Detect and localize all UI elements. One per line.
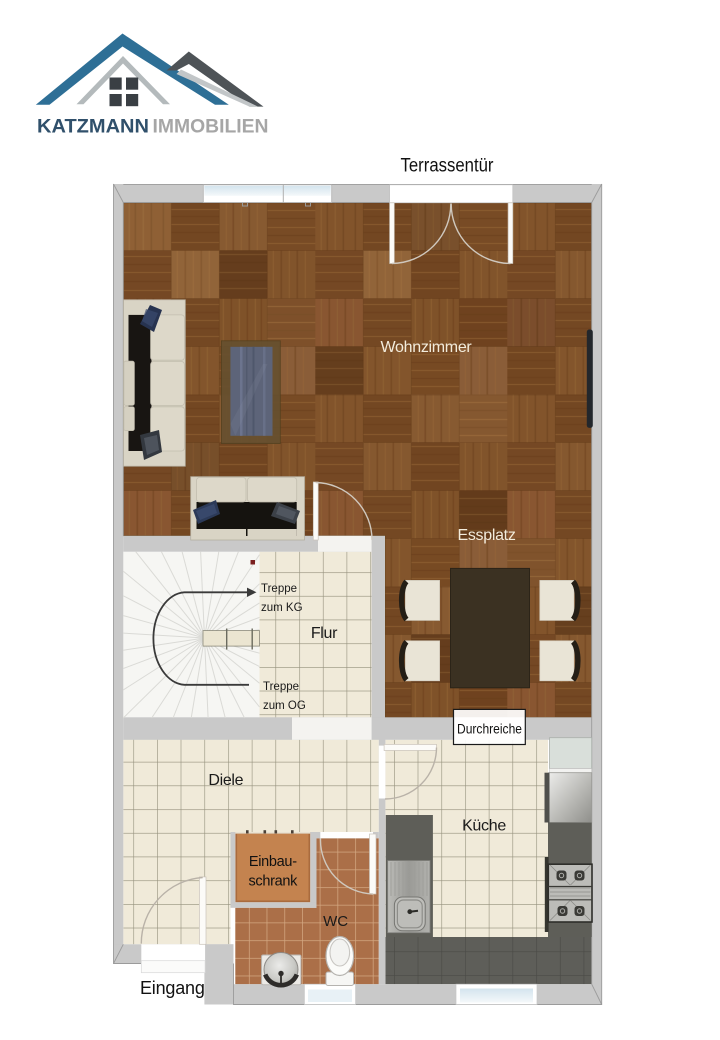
svg-text:Diele: Diele [208,772,243,789]
svg-text:Terrassentür: Terrassentür [401,156,495,177]
svg-text:schrank: schrank [248,874,298,890]
svg-text:Essplatz: Essplatz [457,527,515,544]
svg-text:zum KG: zum KG [261,602,303,614]
svg-text:KATZMANN: KATZMANN [37,117,149,138]
svg-text:IMMOBILIEN: IMMOBILIEN [153,117,269,138]
svg-text:Durchreiche: Durchreiche [457,722,522,737]
svg-text:Treppe: Treppe [261,583,297,595]
svg-text:Treppe: Treppe [263,681,299,693]
svg-text:Eingang: Eingang [140,978,205,998]
svg-text:Küche: Küche [462,818,506,835]
svg-text:Flur: Flur [311,625,338,642]
svg-text:Einbau-: Einbau- [249,854,297,870]
svg-text:Wohnzimmer: Wohnzimmer [381,339,473,356]
svg-text:WC: WC [323,913,348,930]
svg-text:zum OG: zum OG [263,700,306,712]
